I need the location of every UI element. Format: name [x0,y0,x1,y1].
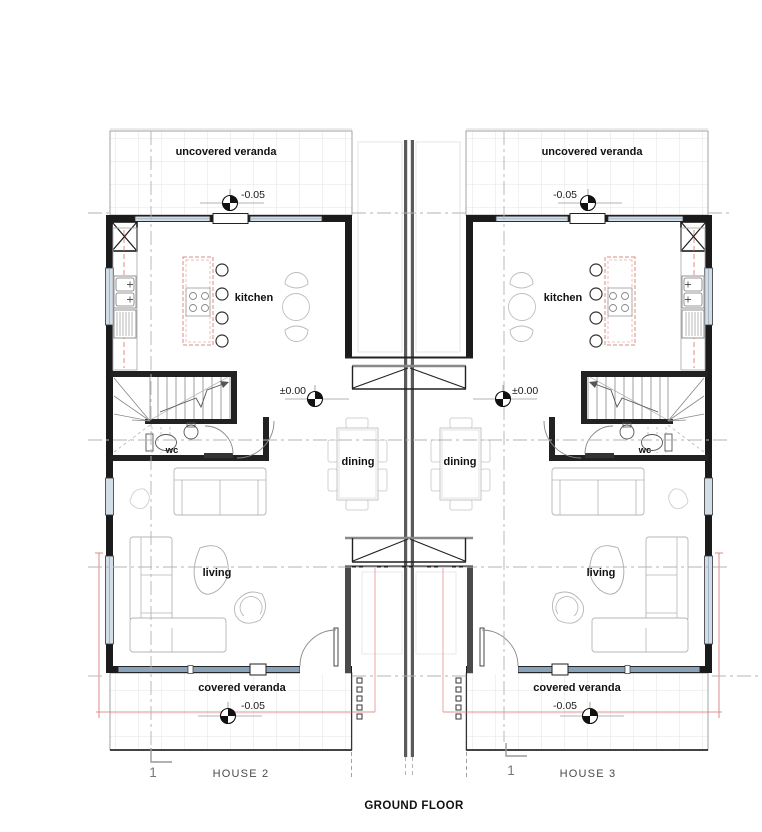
house-3-wc-label: wc [638,445,652,456]
house-2-wc-label: wc [165,445,179,456]
house-3-uncovered-veranda-label: uncovered veranda [542,146,644,158]
house-2-uncovered-veranda-label: uncovered veranda [176,146,278,158]
house-2-covered-veranda-label: covered veranda [198,682,286,694]
house-2-rear-level: -0.05 [241,700,265,712]
house-2-interior-level: ±0.00 [280,385,306,397]
house-3-name: HOUSE 3 [560,768,617,780]
house-3-rear-level: -0.05 [553,700,577,712]
house-2-kitchen-label: kitchen [235,292,274,304]
house-3-living-label: living [587,567,616,579]
house-2-living-label: living [203,567,232,579]
drawing-title: GROUND FLOOR [364,800,464,812]
floor-plan-drawing: uncovered veranda uncovered veranda -0.0… [0,0,762,832]
house-3-covered-veranda-label: covered veranda [533,682,621,694]
house-3-dining-label: dining [444,456,477,468]
house-3-front-level: -0.05 [553,189,577,201]
house-3-kitchen-label: kitchen [544,292,583,304]
house-2-front-level: -0.05 [241,189,265,201]
house-3-section-number: 1 [507,763,515,778]
house-2-dining-label: dining [342,456,375,468]
house-3-geometry [409,129,723,778]
house-2-section-number: 1 [149,765,157,780]
house-3-interior-level: ±0.00 [512,385,538,397]
house-2-name: HOUSE 2 [213,768,270,780]
house-2-geometry [95,129,409,778]
